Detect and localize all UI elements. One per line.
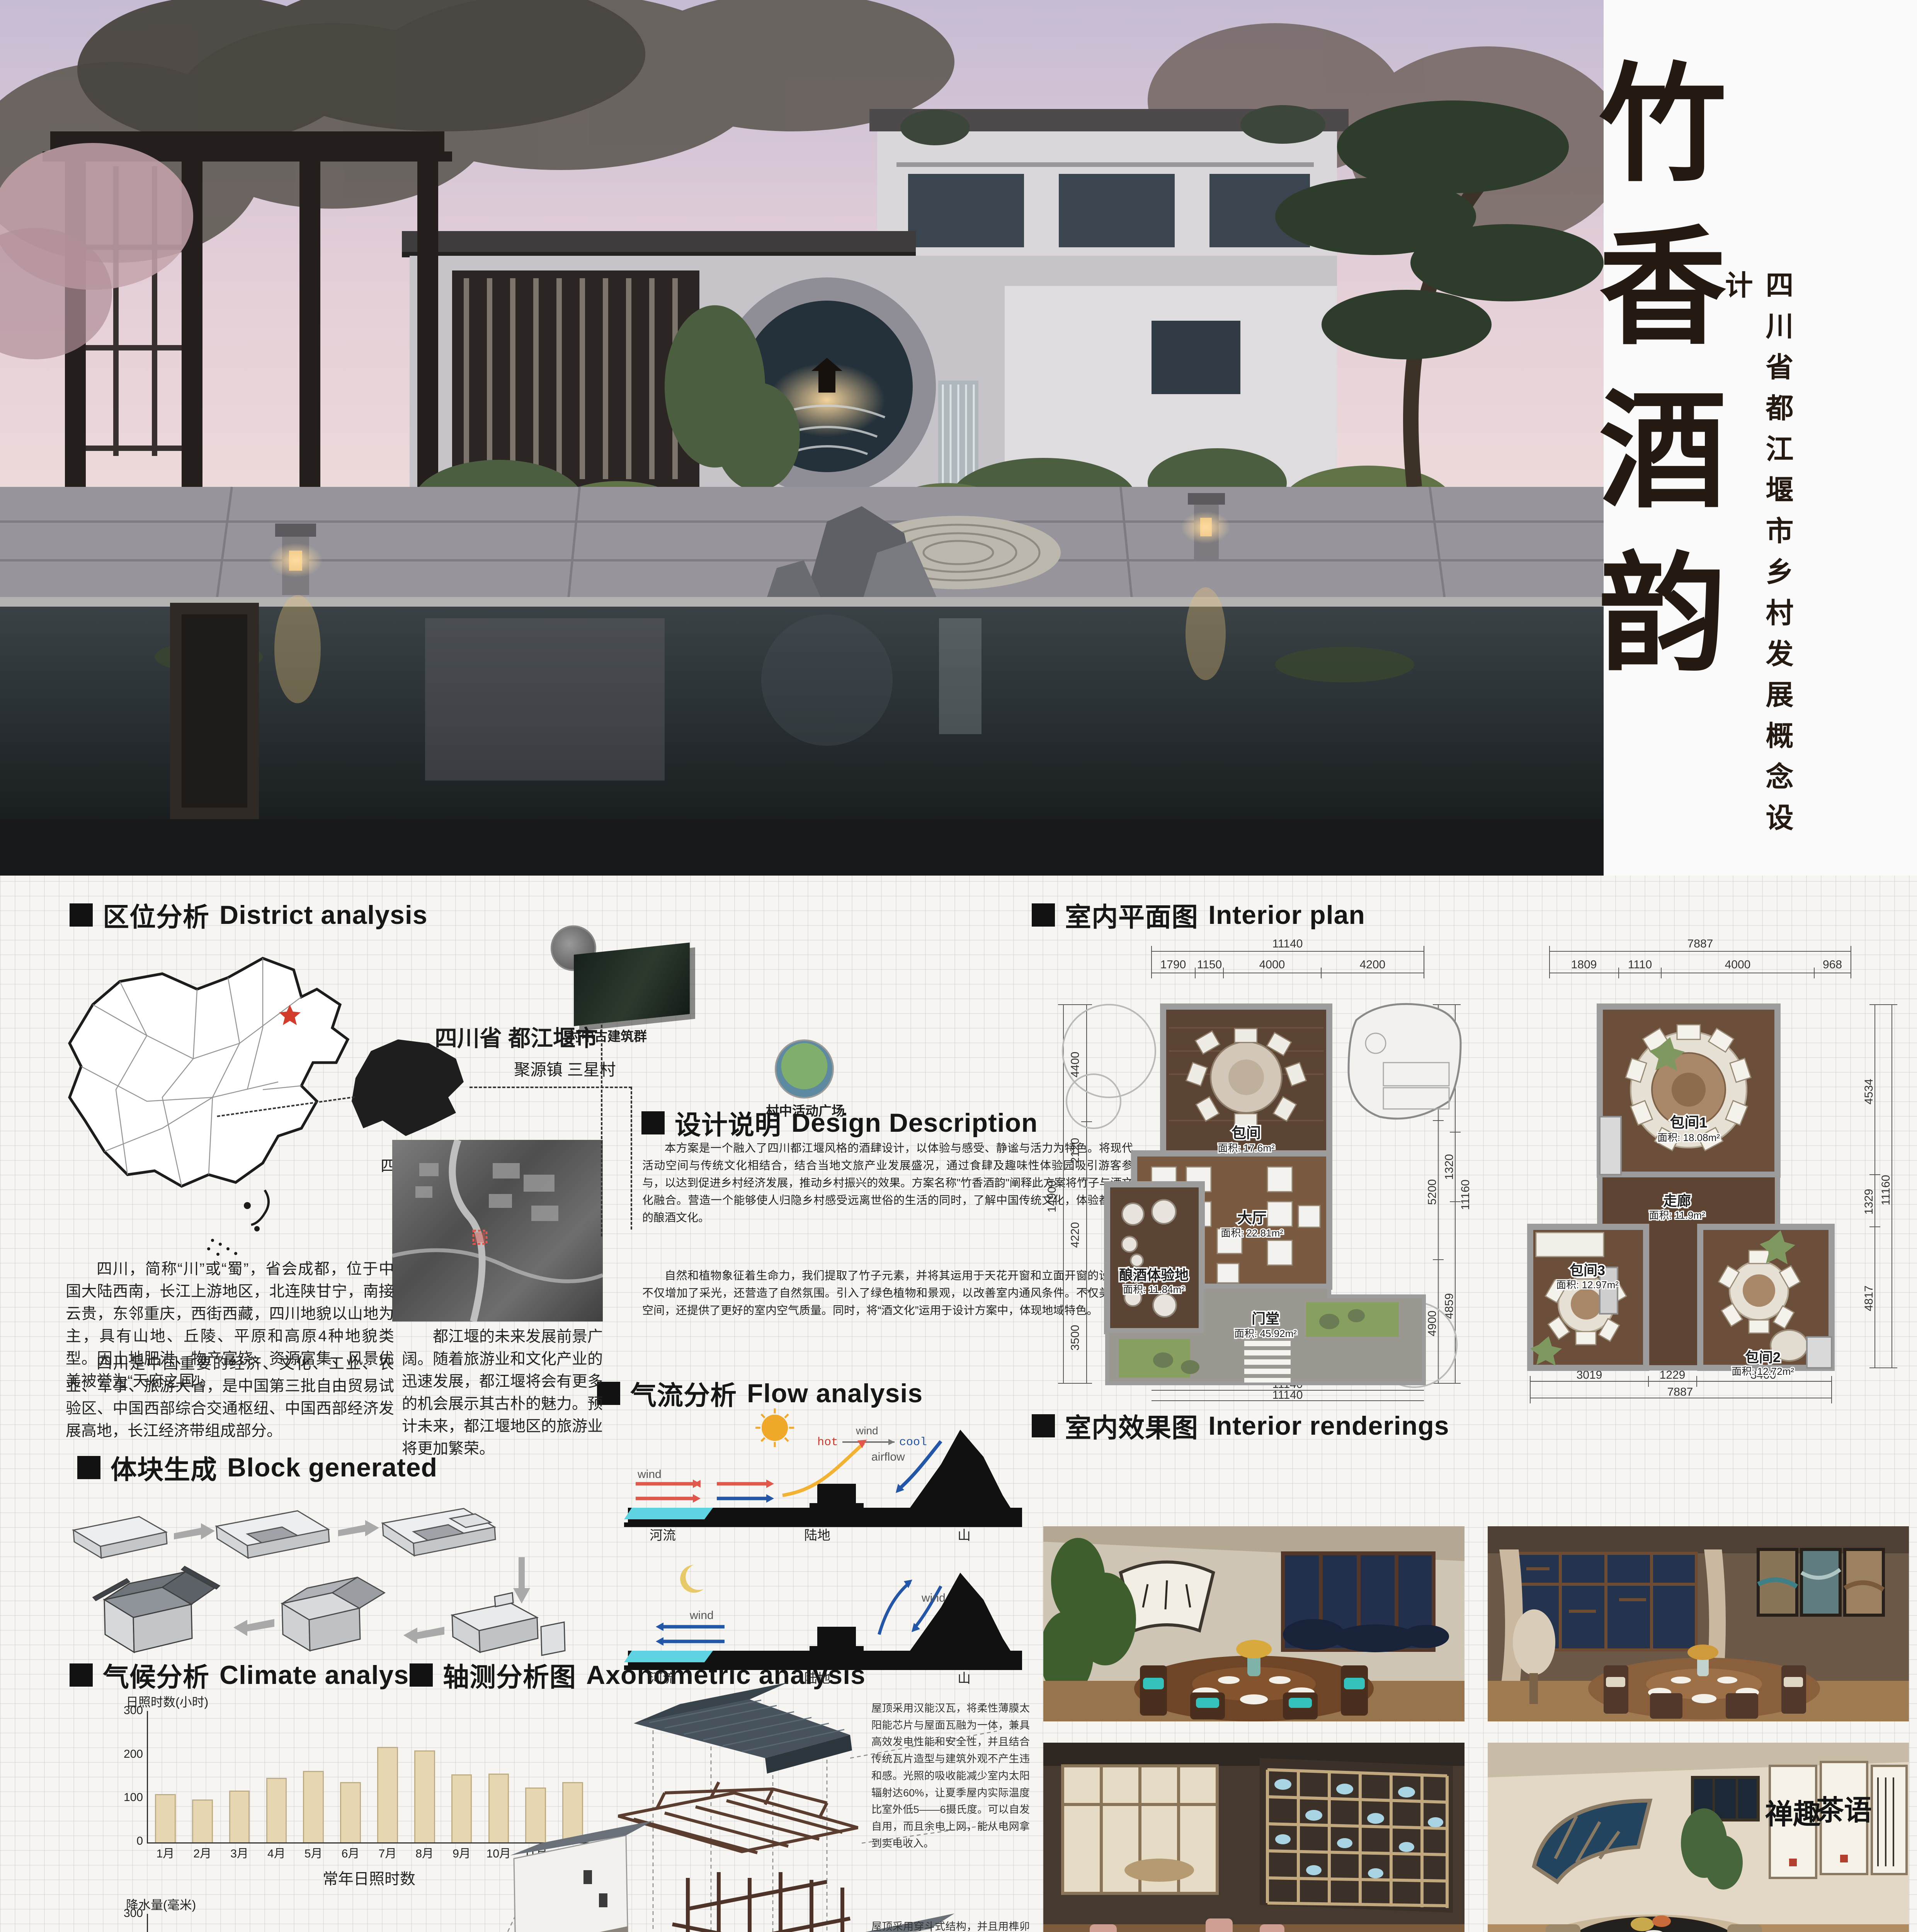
header-square-icon: [1032, 1414, 1055, 1437]
flow-diagram-day: hot wind cool wind airflow 河流 陆地 山: [601, 1406, 1022, 1546]
bar-4月: 4月: [258, 1914, 295, 1932]
svg-text:11140: 11140: [1272, 937, 1303, 950]
header-renderings: 室内效果图Interior renderings: [1032, 1406, 1449, 1445]
svg-text:面积: 22.81m²: 面积: 22.81m²: [1221, 1227, 1283, 1239]
bar-5月: 5月: [295, 1711, 332, 1842]
svg-text:1809: 1809: [1571, 958, 1597, 971]
svg-text:5200: 5200: [1426, 1179, 1439, 1205]
svg-text:4000: 4000: [1725, 958, 1751, 971]
header-square-icon: [70, 1663, 93, 1687]
svg-text:wind: wind: [856, 1425, 878, 1437]
svg-text:包间3: 包间3: [1570, 1262, 1605, 1278]
svg-text:门堂: 门堂: [1252, 1311, 1279, 1327]
svg-text:7887: 7887: [1667, 1386, 1693, 1398]
chart-y-ticks: 3002001000: [112, 1907, 143, 1932]
chart-y-ticks: 3002001000: [112, 1704, 143, 1848]
heritage-3d-tile: [574, 942, 690, 1026]
svg-text:4000: 4000: [1259, 958, 1285, 971]
map-connector-line: [469, 1087, 632, 1088]
poster-subtitle: 四川省都江堰市乡村发展概念设计: [1716, 270, 1798, 873]
svg-text:4534: 4534: [1863, 1079, 1875, 1105]
svg-text:禅趣: 禅趣: [1765, 1798, 1821, 1830]
svg-text:包间1: 包间1: [1670, 1115, 1707, 1131]
svg-text:面积: 17.6m²: 面积: 17.6m²: [1218, 1142, 1275, 1154]
svg-text:河流: 河流: [650, 1528, 676, 1543]
svg-text:4817: 4817: [1863, 1286, 1875, 1311]
svg-text:包间: 包间: [1232, 1125, 1261, 1141]
rendering-dining-hall-teapots: [1043, 1743, 1465, 1932]
header-district: 区位分析District analysis: [70, 896, 428, 934]
plaza-photo: [775, 1039, 834, 1099]
svg-text:3500: 3500: [1069, 1325, 1082, 1351]
header-block: 体块生成Block generated: [77, 1448, 437, 1486]
svg-text:2120: 2120: [1069, 1138, 1082, 1164]
svg-text:4220: 4220: [1069, 1222, 1082, 1248]
svg-text:wind: wind: [689, 1609, 714, 1622]
district-paragraph-3: 都江堰的未来发展前景广阔。随着旅游业和文化产业的迅速发展，都江堰将会有更多的机会…: [402, 1325, 603, 1460]
svg-text:11160: 11160: [1880, 1175, 1892, 1206]
rendering-tearoom-fan-window: 禅趣 茶语: [1488, 1743, 1909, 1932]
svg-text:wind: wind: [637, 1468, 662, 1481]
svg-text:山: 山: [958, 1528, 971, 1543]
svg-text:hot: hot: [817, 1436, 838, 1449]
heritage-callout-label: 村中古建筑群: [568, 1026, 647, 1045]
svg-text:1320: 1320: [1443, 1154, 1456, 1180]
svg-text:走廊: 走廊: [1663, 1193, 1691, 1209]
svg-text:茶语: 茶语: [1816, 1794, 1872, 1827]
bar-7月: 7月: [369, 1914, 406, 1932]
bar-7月: 7月: [369, 1711, 406, 1842]
svg-text:面积: 45.92m²: 面积: 45.92m²: [1234, 1328, 1297, 1339]
svg-text:4900: 4900: [1426, 1311, 1439, 1337]
bar-5月: 5月: [295, 1914, 332, 1932]
bar-1月: 1月: [147, 1914, 184, 1932]
svg-text:4400: 4400: [1069, 1052, 1082, 1078]
header-square-icon: [641, 1111, 665, 1134]
svg-text:1150: 1150: [1197, 958, 1222, 971]
svg-text:14900: 14900: [1046, 1180, 1058, 1212]
svg-text:11160: 11160: [1459, 1180, 1472, 1210]
svg-text:4200: 4200: [1360, 958, 1386, 971]
svg-text:包间2: 包间2: [1745, 1349, 1781, 1365]
plaza-callout-label: 村中活动广场: [766, 1100, 845, 1119]
svg-text:968: 968: [1823, 958, 1842, 971]
header-square-icon: [77, 1456, 100, 1479]
axon-annotation-2: 屋顶采用穿斗式结构，并且用榫卯结构搭建，确保结构牢固的同时，减轻屋顶重量。: [871, 1918, 1030, 1932]
svg-text:大厅: 大厅: [1237, 1210, 1267, 1226]
district-paragraph-2: 四川是中国重要的经济、文化、工业、农业、军事、旅游大省，是中国第三批自由贸易试验…: [66, 1352, 394, 1442]
satellite-image: [392, 1140, 603, 1321]
svg-text:面积: 11.9m²: 面积: 11.9m²: [1649, 1209, 1705, 1221]
design-separator-line: [601, 1020, 602, 1236]
svg-text:酿酒体验地: 酿酒体验地: [1119, 1267, 1189, 1283]
svg-text:airflow: airflow: [871, 1451, 905, 1463]
header-square-icon: [1032, 903, 1055, 927]
svg-text:面积: 12.72m²: 面积: 12.72m²: [1732, 1366, 1794, 1377]
header-square-icon: [70, 903, 93, 927]
rendering-dining-lattice-room: [1488, 1526, 1909, 1721]
bar-2月: 2月: [184, 1914, 221, 1932]
block-generation-diagram: [50, 1499, 583, 1665]
bar-3月: 3月: [221, 1914, 258, 1932]
flow-diagram-night: wind wind 河流 陆地 山: [601, 1549, 1022, 1689]
svg-text:面积: 11.84m²: 面积: 11.84m²: [1123, 1284, 1185, 1295]
floor-plan-1: 11140 1790 1150 4000 4200 14900 4400 212…: [1036, 935, 1472, 1405]
header-plan: 室内平面图Interior plan: [1032, 896, 1365, 934]
svg-text:cool: cool: [899, 1436, 927, 1449]
svg-text:wind: wind: [921, 1592, 946, 1604]
svg-text:1790: 1790: [1160, 958, 1186, 971]
poster-title: 竹香 酒韵: [1614, 43, 1711, 696]
svg-text:1110: 1110: [1628, 958, 1652, 971]
bar-6月: 6月: [332, 1711, 369, 1842]
poster: 竹香 酒韵 四川省都江堰市乡村发展概念设计 区位分析District analy…: [0, 0, 1917, 1932]
axon-annotation-1: 屋顶采用汉能汉瓦，将柔性薄膜太阳能芯片与屋面瓦融为一体，兼具高效发电性能和安全性…: [871, 1700, 1030, 1852]
bar-6月: 6月: [332, 1914, 369, 1932]
svg-text:7887: 7887: [1687, 937, 1713, 950]
floor-plan-2: 7887 1809 1110 4000 968 4534 1329 4817 1…: [1484, 935, 1913, 1405]
svg-text:陆地: 陆地: [804, 1528, 830, 1543]
map-connector-line: [631, 1087, 632, 1230]
svg-text:面积: 12.97m²: 面积: 12.97m²: [1556, 1279, 1619, 1291]
bar-4月: 4月: [258, 1711, 295, 1842]
bar-3月: 3月: [221, 1711, 258, 1842]
svg-text:1329: 1329: [1863, 1189, 1875, 1215]
hero-rendering: [0, 0, 1604, 876]
hero-courtyard-scene: [0, 0, 1604, 876]
china-map: [46, 935, 367, 1264]
svg-text:11140: 11140: [1272, 1389, 1303, 1401]
bar-2月: 2月: [184, 1711, 221, 1842]
bar-1月: 1月: [147, 1711, 184, 1842]
rendering-dining-fan-art: [1043, 1526, 1465, 1721]
svg-text:面积: 18.08m²: 面积: 18.08m²: [1657, 1132, 1720, 1143]
